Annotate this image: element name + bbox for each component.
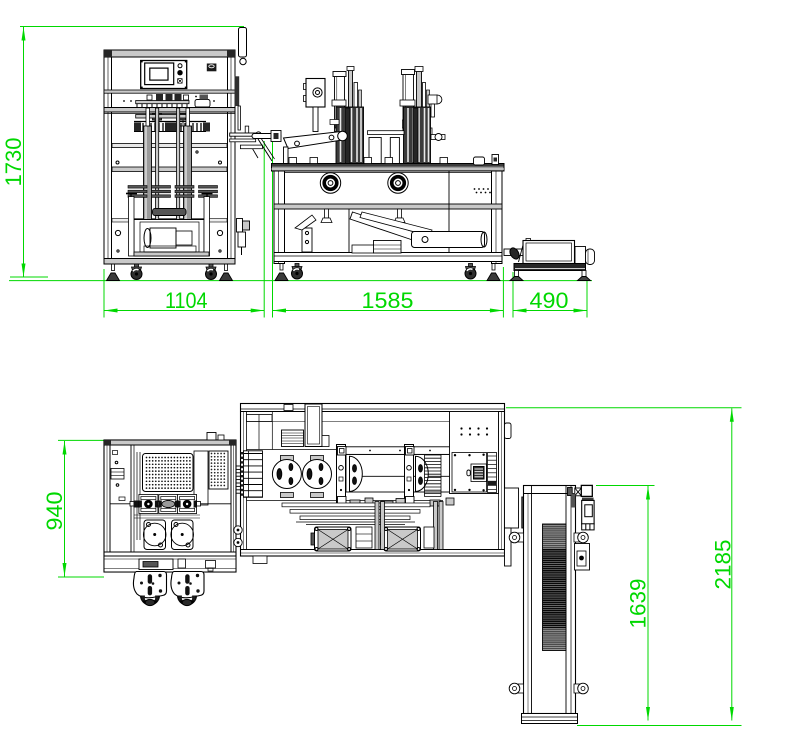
svg-text:490: 490 (530, 288, 569, 313)
svg-text:1104: 1104 (165, 288, 208, 313)
svg-text:1730: 1730 (1, 138, 26, 187)
svg-text:940: 940 (42, 492, 67, 531)
svg-text:2185: 2185 (710, 540, 735, 590)
svg-text:1585: 1585 (362, 288, 414, 313)
svg-text:1639: 1639 (626, 579, 651, 629)
